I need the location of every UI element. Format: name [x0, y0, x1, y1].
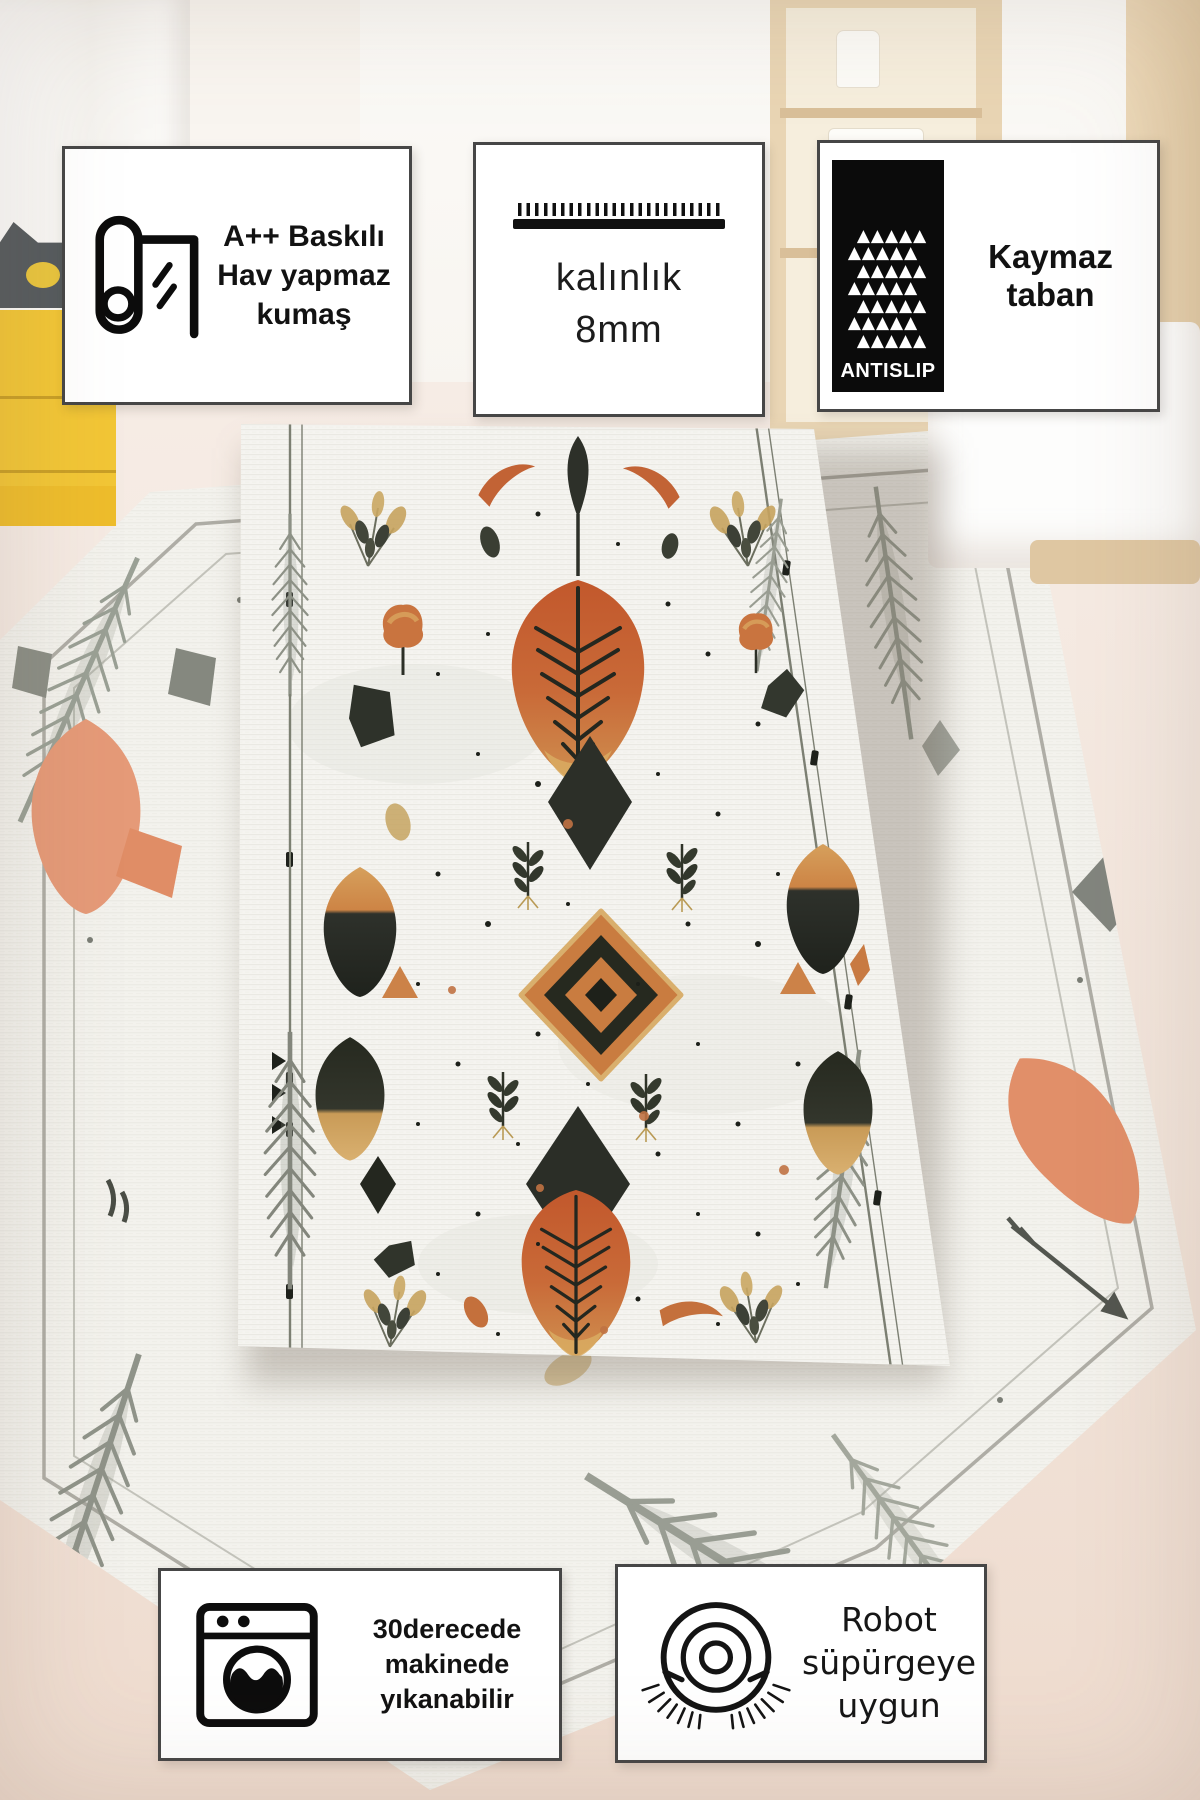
- badge-text-line: uygun: [802, 1685, 976, 1728]
- badge-thickness-text: kalınlık 8mm: [556, 253, 682, 356]
- bed-frame: [1030, 540, 1200, 584]
- badge-fabric-text: A++ Baskılı Hav yapmaz kumaş: [207, 217, 401, 334]
- shelf-item: [836, 30, 880, 88]
- badge-text-line: kalınlık: [556, 253, 682, 304]
- badge-text-line: süpürgeye: [802, 1642, 976, 1685]
- cat-toy-patch: [26, 262, 60, 288]
- washing-machine-icon: [191, 1599, 323, 1731]
- comb-teeth: [518, 203, 720, 216]
- rug-roll-icon: [89, 208, 207, 344]
- feature-badge-antislip: ▲▲▲▲▲ ▲▲▲▲▲ ▲▲▲▲▲ ▲▲▲▲▲ ▲▲▲▲▲ ▲▲▲▲▲ ▲▲▲▲…: [817, 140, 1160, 412]
- triangle-row: ▲▲▲▲▲: [857, 333, 927, 351]
- badge-text-line: yıkanabilir: [345, 1682, 549, 1717]
- feature-badge-washable: 30derecede makinede yıkanabilir: [158, 1568, 562, 1761]
- feature-badge-thickness: kalınlık 8mm: [473, 142, 765, 417]
- rug-product-photo: A++ Baskılı Hav yapmaz kumaş kalınlık 8m…: [0, 0, 1200, 1800]
- badge-robot-text: Robot süpürgeye uygun: [802, 1599, 976, 1728]
- badge-text-line: 8mm: [556, 305, 682, 356]
- badge-antislip-text: Kaymaz taban: [950, 238, 1151, 314]
- badge-text-line: kumaş: [207, 295, 401, 334]
- badge-text-line: Robot: [802, 1599, 976, 1642]
- antislip-triangle-grid-icon: ▲▲▲▲▲ ▲▲▲▲▲ ▲▲▲▲▲ ▲▲▲▲▲ ▲▲▲▲▲ ▲▲▲▲▲ ▲▲▲▲…: [832, 160, 944, 392]
- feature-badge-robot-vacuum: Robot süpürgeye uygun: [615, 1564, 987, 1763]
- comb-bar: [513, 219, 725, 229]
- badge-text-line: A++ Baskılı: [207, 217, 401, 256]
- cabinet-drawer-gap: [0, 470, 116, 473]
- shelf-board: [780, 108, 982, 118]
- feature-badge-fabric: A++ Baskılı Hav yapmaz kumaş: [62, 146, 412, 405]
- pile-height-comb-icon: [513, 203, 725, 229]
- robot-vacuum-icon: [630, 1592, 802, 1736]
- badge-text-line: Hav yapmaz: [207, 256, 401, 295]
- antislip-triangles: ▲▲▲▲▲ ▲▲▲▲▲ ▲▲▲▲▲ ▲▲▲▲▲ ▲▲▲▲▲ ▲▲▲▲▲ ▲▲▲▲…: [853, 228, 923, 351]
- antislip-label: ANTISLIP: [840, 360, 935, 383]
- badge-text-line: 30derecede: [345, 1612, 549, 1647]
- badge-text-line: makinede: [345, 1647, 549, 1682]
- badge-washable-text: 30derecede makinede yıkanabilir: [345, 1612, 549, 1717]
